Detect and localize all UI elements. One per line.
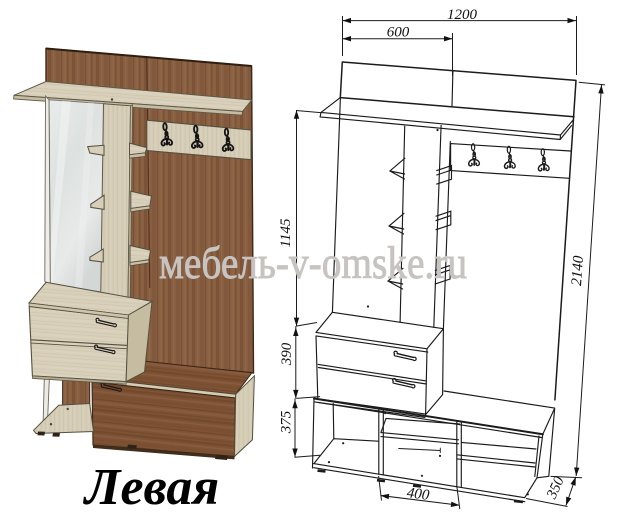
svg-text:мебель-v-omske.ru: мебель-v-omske.ru [159,237,467,288]
svg-text:1200: 1200 [447,7,478,23]
svg-text:600: 600 [387,25,410,41]
svg-text:375: 375 [279,410,295,434]
svg-text:2140: 2140 [569,255,587,286]
svg-text:390: 390 [279,342,295,366]
svg-text:400: 400 [406,485,431,504]
svg-text:Левая: Левая [83,459,219,516]
